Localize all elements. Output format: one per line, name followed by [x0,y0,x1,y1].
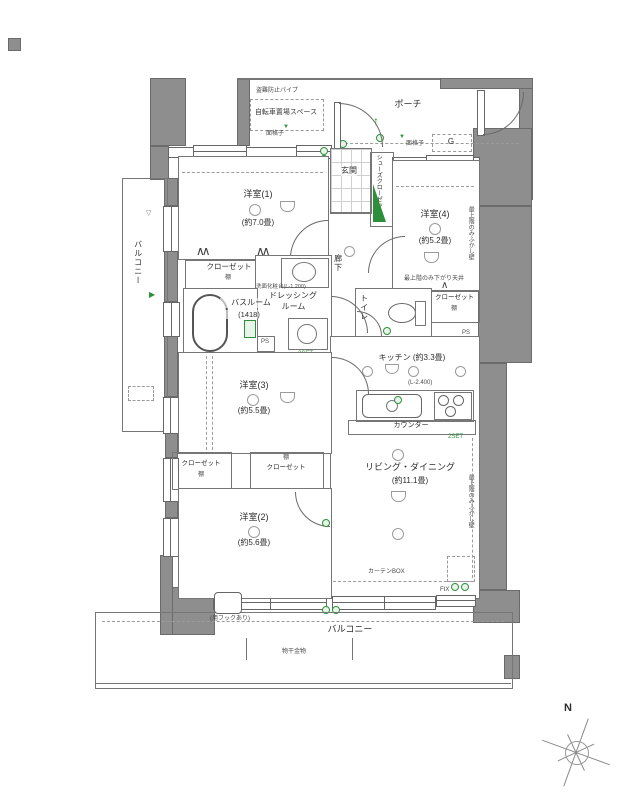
room-yo2-size: (約5.6畳) [215,538,293,548]
wall [150,146,169,180]
closet-door-icon: ∧∧ [196,245,208,257]
shelf-label: 棚 [275,455,297,462]
hatch-box [128,386,154,401]
closet-label: クローゼット [258,464,314,472]
door-arc [368,236,405,273]
room-yo3-size: (約5.5畳) [215,406,293,416]
laundry-hardware-label: 物干金物 [282,649,306,656]
wall [478,363,507,590]
shower-icon [244,320,256,338]
toilet-icon [388,303,416,323]
ceiling-light-icon [429,223,441,235]
shelf-label: 棚 [190,472,212,479]
laundry-pole-icon [246,638,247,660]
ceiling-light-icon [408,366,419,377]
genkan-label: 玄関 [341,166,357,176]
genkan-floor [330,148,372,214]
outlet-icon [451,583,459,591]
wall [8,38,21,51]
balcony-dashed-line [102,621,504,622]
ceiling-light-icon [344,246,355,257]
closet-label: クローゼット [432,294,477,302]
porch-label: ポーチ [378,99,438,110]
ceiling-light-icon [247,394,259,406]
sliding-window [332,596,436,610]
outlet-icon [461,583,469,591]
hall-label: 廊下 [333,254,343,272]
bathroom-size: (1418) [224,310,274,319]
kitchen-length-label: (L-2.400) [408,380,432,387]
kitchen-label: キッチン (約3.3畳) [352,353,472,363]
shoe-closet-wedge-icon [373,184,386,222]
outlet-icon [383,327,391,335]
counter-label: カウンター [366,422,456,430]
living-dining-label: リビング・ダイニング [355,462,465,473]
ceiling-light-icon [248,526,260,538]
living-dining-size: (約11.1畳) [368,476,452,486]
ceiling-light-icon [392,449,404,461]
fix-window [436,595,476,607]
window [163,302,180,337]
window-marker-icon: ▽ [146,210,151,218]
room-yo3-label: 洋室(3) [215,380,293,391]
ceiling-light-icon [455,366,466,377]
burner-icon [438,395,449,406]
wall [478,206,532,363]
window-grille-label: 面格子 [406,141,424,148]
ac-space-box [447,556,475,582]
ceiling-note: 最上階のみ下がり天井 [404,276,464,283]
window [163,397,179,434]
anti-theft-pipe-label: 盗難防止パイプ [256,88,298,95]
burner-icon [445,406,456,417]
grille-marker-icon: ▼ [399,134,405,141]
ceiling-dashed-line [212,356,213,450]
wall [237,78,250,146]
genkan-step [330,212,370,214]
compass-ring [565,741,589,765]
pipe-space-label: PS [257,339,273,346]
closet-label: クローゼット [195,262,263,271]
burner-icon [453,395,464,406]
wall [150,78,186,146]
outlet-count-label: 2SET [448,434,463,441]
outlet-icon [394,396,402,404]
room-yo4-size: (約5.2畳) [398,236,472,246]
fix-window-label: FIX [440,587,449,594]
bottom-balcony-label: バルコニー [310,624,390,635]
ceiling-dashed-line [182,172,323,173]
bicycle-space-label: 自転車置場スペース [251,109,321,117]
room-yo1-size: (約7.0畳) [213,218,303,228]
wall [165,500,178,518]
slop-sink-icon [214,592,242,614]
outlet-icon [320,147,328,155]
washbasin-bowl-icon [292,262,316,282]
wall [473,128,532,206]
floor-plan: バルコニー ▶ ▽ 盗難防止パイプ 自転車置場スペース ▼ 面格子 ポーチ ↑ … [0,0,618,794]
ceiling-light-icon [392,528,404,540]
outlet-icon [322,519,330,527]
shelf-label: 棚 [438,306,470,313]
balcony-edge-line [95,683,511,684]
window [163,518,179,557]
hook-note-label: (用フックあり) [210,616,250,623]
door-arc [339,103,383,147]
ceiling-dashed-line [206,356,207,450]
curtain-box-label: カーテンBOX [368,569,405,576]
bathroom-label: バスルーム [220,298,282,308]
toilet-tank-icon [415,301,426,326]
wall-note: 最上階のみふかし壁 [466,206,473,260]
room-yo4-label: 洋室(4) [398,209,472,220]
window-grille-label: 面格子 [266,131,284,138]
ceiling-light-icon [249,204,261,216]
room-yo2-label: 洋室(2) [215,512,293,523]
vanity-label: 洗面化粧台(L-1.200) [256,284,306,291]
pipe-space-label: PS [458,330,474,337]
compass-icon: N [538,700,614,790]
washing-machine-icon [297,324,317,344]
gas-meter-label: G [432,137,470,147]
compass-star [540,716,612,788]
shelf-label: 棚 [213,275,243,282]
left-balcony-label: バルコニー [133,240,143,285]
room-yo1-label: 洋室(1) [213,189,303,200]
evacuation-marker-icon: ▶ [149,290,155,300]
closet-label: クローゼット [174,460,228,468]
laundry-pole-icon [352,638,353,660]
closet-yo3 [172,452,232,490]
north-label: N [564,702,572,715]
ceiling-dashed-line [396,186,474,187]
